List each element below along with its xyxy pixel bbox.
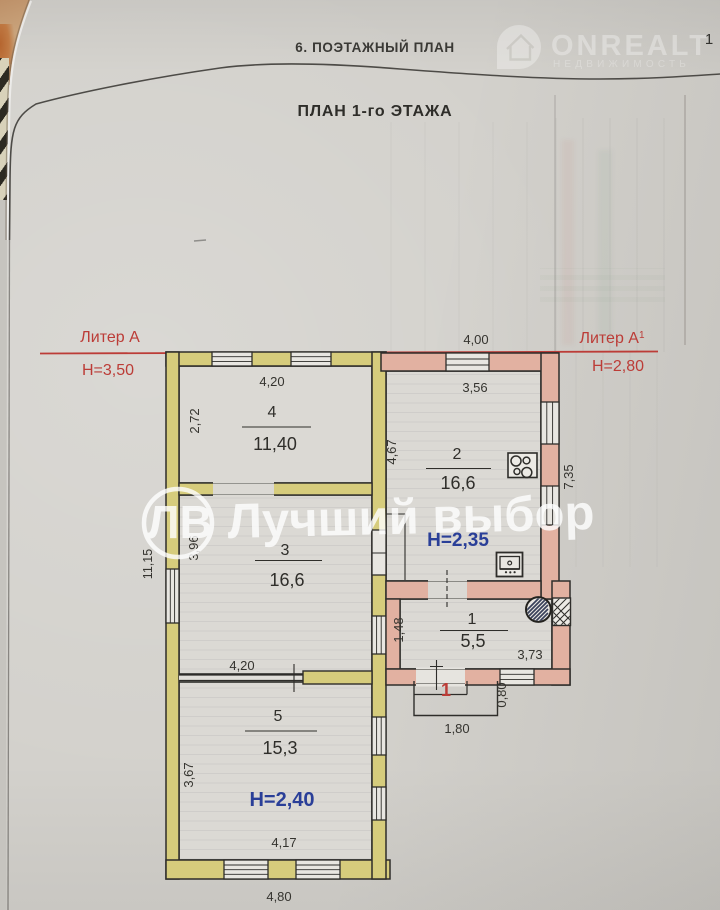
svg-text:6. ПОЭТАЖНЫЙ ПЛАН: 6. ПОЭТАЖНЫЙ ПЛАН xyxy=(295,40,454,55)
svg-text:1: 1 xyxy=(441,680,451,700)
svg-text:11,40: 11,40 xyxy=(253,434,297,454)
svg-text:2: 2 xyxy=(453,446,462,463)
svg-text:16,6: 16,6 xyxy=(269,570,304,590)
svg-text:2,72: 2,72 xyxy=(187,408,202,433)
svg-text:4,00: 4,00 xyxy=(463,332,488,347)
svg-text:3,67: 3,67 xyxy=(181,762,196,787)
svg-text:5: 5 xyxy=(274,708,283,725)
svg-text:4,67: 4,67 xyxy=(384,439,399,464)
svg-text:Лучший выбор: Лучший выбор xyxy=(227,486,595,549)
svg-text:4,17: 4,17 xyxy=(271,835,296,850)
svg-text:ПЛАН 1-го ЭТАЖА: ПЛАН 1-го ЭТАЖА xyxy=(298,103,453,120)
svg-text:1,48: 1,48 xyxy=(391,617,406,642)
svg-text:15,3: 15,3 xyxy=(262,738,297,758)
svg-text:Н=2,80: Н=2,80 xyxy=(592,358,644,375)
svg-text:4,80: 4,80 xyxy=(266,889,291,904)
svg-text:Н=2,40: Н=2,40 xyxy=(249,789,314,811)
svg-text:Литер А1: Литер А1 xyxy=(579,330,645,347)
svg-text:0,80: 0,80 xyxy=(494,682,509,707)
svg-text:1,80: 1,80 xyxy=(444,721,469,736)
svg-text:11,15: 11,15 xyxy=(141,549,155,579)
svg-text:Н=3,50: Н=3,50 xyxy=(82,362,134,379)
svg-text:ONREALT: ONREALT xyxy=(551,30,710,62)
svg-text:ЛВ: ЛВ xyxy=(147,496,213,548)
svg-text:Литер А: Литер А xyxy=(80,329,140,346)
svg-text:3,56: 3,56 xyxy=(462,380,487,395)
svg-text:4,20: 4,20 xyxy=(229,658,254,673)
svg-text:НЕДВИЖИМОСТЬ: НЕДВИЖИМОСТЬ xyxy=(553,59,690,70)
svg-text:4,20: 4,20 xyxy=(259,374,284,389)
svg-text:4: 4 xyxy=(268,404,277,421)
svg-text:1: 1 xyxy=(468,611,477,628)
svg-text:3,73: 3,73 xyxy=(517,647,542,662)
svg-text:5,5: 5,5 xyxy=(460,631,485,651)
